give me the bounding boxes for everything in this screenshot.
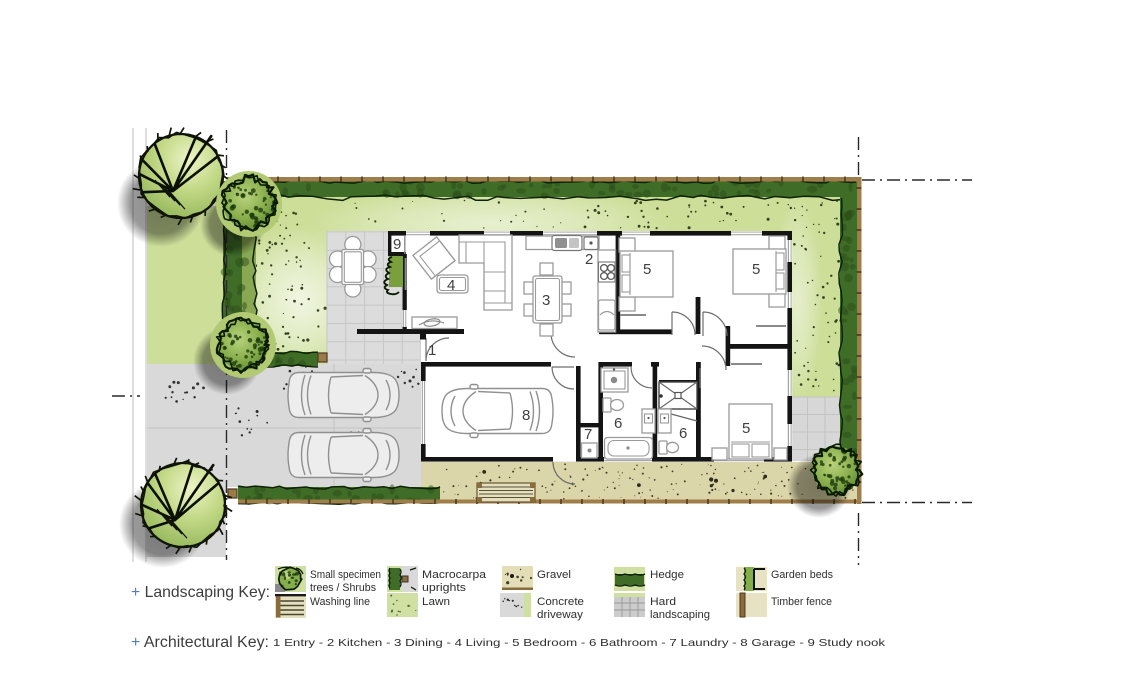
svg-text:+ Architectural Key:: + Architectural Key: — [131, 634, 269, 651]
svg-text:5: 5 — [742, 420, 750, 437]
svg-text:trees / Shrubs: trees / Shrubs — [310, 582, 376, 594]
svg-text:4: 4 — [447, 277, 455, 294]
svg-text:6: 6 — [614, 415, 622, 432]
svg-text:Timber fence: Timber fence — [771, 596, 832, 608]
svg-text:5: 5 — [643, 261, 651, 278]
svg-text:1: 1 — [428, 342, 436, 359]
svg-text:Lawn: Lawn — [422, 596, 450, 608]
svg-text:Small specimen: Small specimen — [310, 569, 381, 581]
svg-text:8: 8 — [522, 407, 530, 424]
svg-text:3: 3 — [542, 292, 550, 309]
svg-text:6: 6 — [679, 425, 687, 442]
svg-text:9: 9 — [393, 236, 401, 253]
svg-text:Washing line: Washing line — [310, 596, 370, 608]
svg-text:Hard: Hard — [650, 596, 676, 608]
svg-text:1 Entry - 2 Kitchen - 3 Dining: 1 Entry - 2 Kitchen - 3 Dining - 4 Livin… — [273, 638, 886, 649]
svg-text:2: 2 — [585, 251, 593, 268]
svg-text:Concrete: Concrete — [537, 596, 584, 608]
svg-text:+ Landscaping Key:: + Landscaping Key: — [131, 584, 270, 601]
svg-text:landscaping: landscaping — [650, 609, 710, 621]
svg-text:Garden beds: Garden beds — [771, 569, 833, 581]
svg-text:uprights: uprights — [422, 582, 467, 594]
svg-text:5: 5 — [752, 261, 760, 278]
svg-text:driveway: driveway — [537, 609, 584, 621]
svg-text:Hedge: Hedge — [650, 569, 684, 581]
svg-text:7: 7 — [584, 426, 592, 443]
svg-text:Gravel: Gravel — [537, 569, 571, 581]
svg-text:Macrocarpa: Macrocarpa — [422, 569, 487, 581]
